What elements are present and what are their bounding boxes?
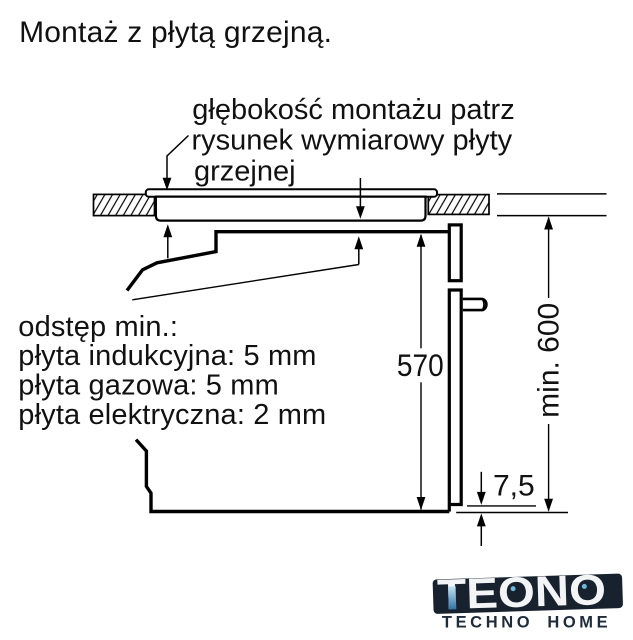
svg-text:głębokość montażu patrz: głębokość montażu patrz: [192, 94, 514, 126]
svg-text:7,5: 7,5: [493, 470, 535, 503]
svg-text:grzejnej: grzejnej: [194, 155, 296, 187]
svg-text:570: 570: [397, 349, 444, 384]
svg-text:odstęp min.:: odstęp min.:: [18, 311, 178, 343]
svg-text:rysunek wymiarowy płyty: rysunek wymiarowy płyty: [192, 125, 513, 157]
svg-text:TECHNO HOME: TECHNO HOME: [442, 613, 611, 631]
svg-text:płyta gazowa: 5 mm: płyta gazowa: 5 mm: [18, 370, 279, 402]
svg-text:Montaż z płytą grzejną.: Montaż z płytą grzejną.: [19, 16, 332, 49]
svg-text:min. 600: min. 600: [532, 303, 565, 418]
svg-text:płyta indukcyjna: 5 mm: płyta indukcyjna: 5 mm: [18, 340, 316, 372]
svg-text:płyta elektryczna: 2 mm: płyta elektryczna: 2 mm: [18, 399, 326, 431]
